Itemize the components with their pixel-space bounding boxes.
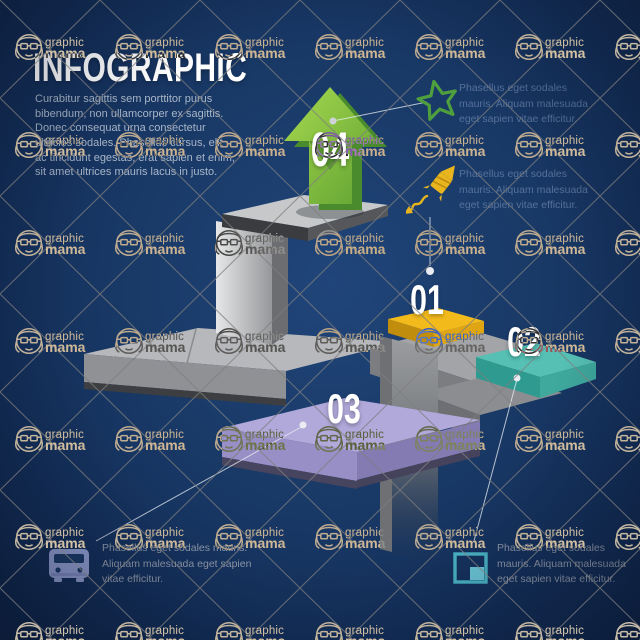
upper-wall-front-face [216,221,272,345]
bus-icon [47,547,95,585]
callout-text-chart: Phasellus eget sodales mauris. Aliquam m… [497,541,635,588]
infographic-canvas: INFOGRAPHIC Curabitur sagittis sem portt… [0,0,640,640]
chart-icon [451,551,491,589]
firework-icon [406,160,464,218]
step-number-03: 03 [308,388,380,430]
upper-wall [216,221,288,345]
step-number-02: 02 [488,321,560,363]
page-title: INFOGRAPHIC [33,48,247,88]
step-number-04: 04 [294,127,366,175]
connector-dot-01 [426,267,434,275]
callout-text-bus: Phasellus eget sodales mauris. Aliquam m… [102,541,254,588]
connector-dot-02 [514,375,521,382]
connector-line-bus [96,426,303,541]
step-number-01: 01 [391,279,463,321]
upper-wall-side-face [272,227,288,345]
star-icon [414,76,462,124]
intro-paragraph: Curabitur sagittis sem porttitor purus b… [35,92,237,180]
connector-dot-03 [300,422,307,429]
callout-text-firework: Phasellus eget sodales mauris. Aliquam m… [459,167,599,214]
callout-text-star: Phasellus eget sodales mauris. Aliquam m… [459,81,599,128]
